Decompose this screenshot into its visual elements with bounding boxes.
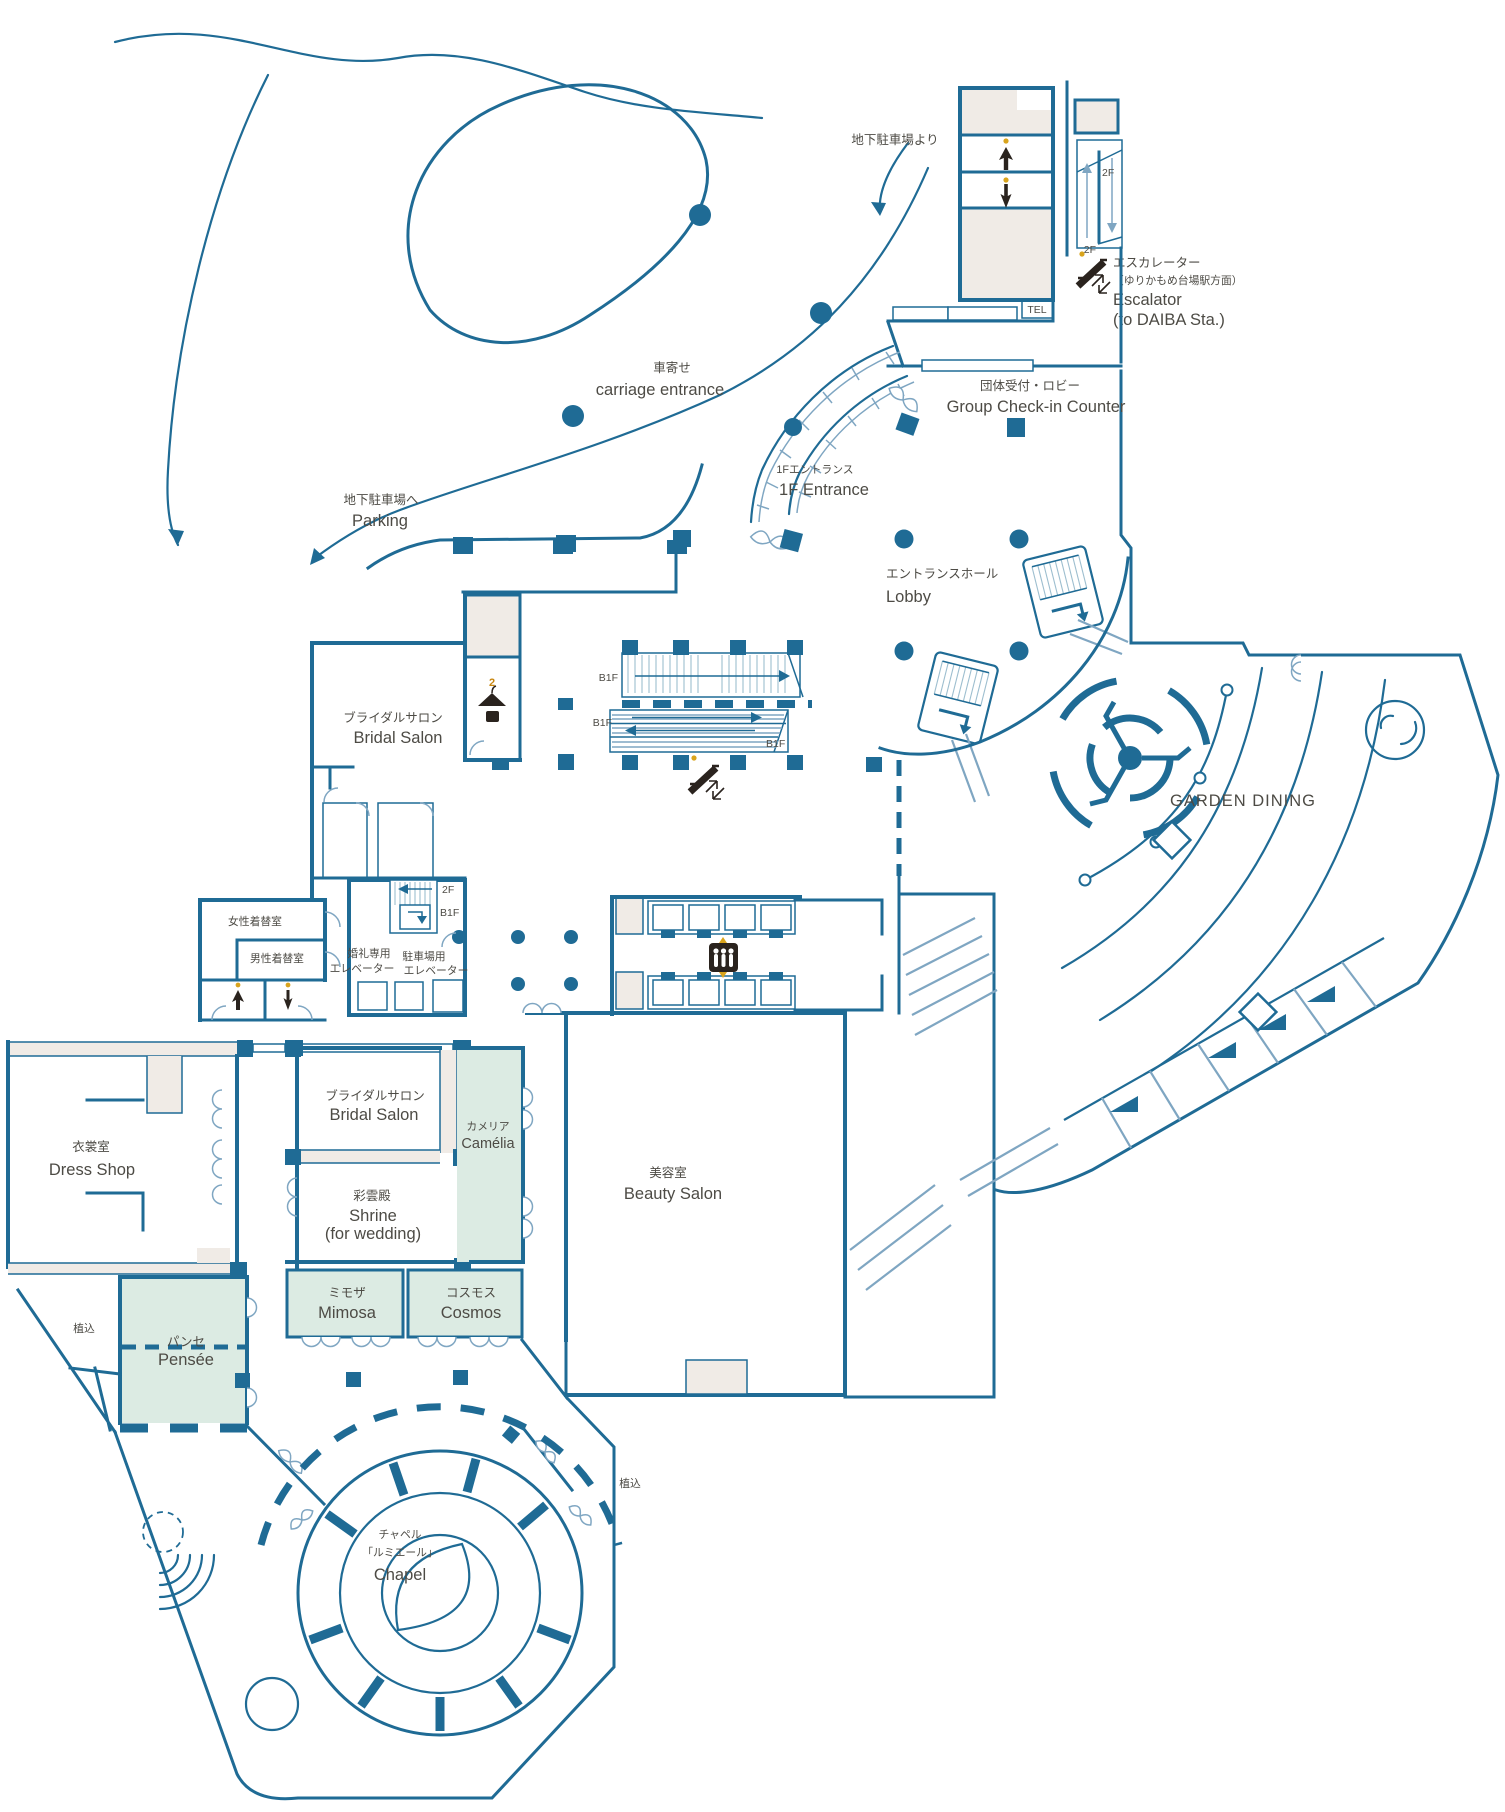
grand-stair-lower xyxy=(917,651,998,744)
service-room xyxy=(960,208,1053,300)
from-parking-arrow-icon xyxy=(871,202,886,216)
cloakroom: 2 xyxy=(465,595,520,760)
planting-left-label: 植込 xyxy=(73,1321,95,1335)
entrance-1f-jp: 1Fエントランス xyxy=(776,464,853,476)
carriage-entrance-area: 車寄せ carriage entrance xyxy=(408,85,832,427)
wedding-elev-label1: 婚礼専用 xyxy=(347,946,390,960)
camelia-jp: カメリア xyxy=(466,1120,509,1133)
chapel-wall-segments xyxy=(310,1459,570,1731)
camelia-en: Camélia xyxy=(461,1136,515,1152)
cloak-number: 2 xyxy=(489,677,495,689)
mimosa-en: Mimosa xyxy=(318,1304,377,1322)
column-round xyxy=(895,642,914,661)
camelia-room: カメリア Camélia xyxy=(457,1048,533,1262)
elevator-people-icon xyxy=(709,937,738,978)
group-checkin-en: Group Check-in Counter xyxy=(947,398,1126,416)
to-parking-arrow-icon xyxy=(310,548,325,565)
down-arrow-icon xyxy=(284,983,293,1010)
escalator-daiba: 2F 2F エスカレーター （ゆりかもめ台場駅方面） Escalator (to… xyxy=(1077,140,1243,643)
wedding-elev-label2: エレベーター xyxy=(330,962,395,975)
shrine-en1: Shrine xyxy=(349,1207,397,1225)
column-round xyxy=(1010,530,1029,549)
elevator-bank xyxy=(612,897,882,1014)
wedding-elevators: 2F B1F 婚礼専用 エレベーター 駐車場用 エレベーター xyxy=(330,880,469,1015)
column-round xyxy=(784,418,802,436)
carriage-label-jp: 車寄せ xyxy=(653,360,691,375)
stairs-2f-label: 2F xyxy=(442,884,454,896)
escalator-icon xyxy=(1078,251,1110,293)
escalator-label-en2: (to DAIBA Sta.) xyxy=(1113,311,1225,329)
column-round xyxy=(810,302,832,324)
changing-rooms: 女性着替室 男性着替室 xyxy=(200,900,340,1020)
banquet-mimosa: ミモザ Mimosa xyxy=(287,1270,403,1347)
garden-dining: GARDEN DINING xyxy=(845,643,1498,1397)
entrance-1f-en: 1F Entrance xyxy=(779,481,869,499)
floor-map: 車寄せ carriage entrance 地下駐車場より TEL xyxy=(0,0,1505,1812)
escalator-2f-top: 2F xyxy=(1102,167,1114,179)
from-parking-label: 地下駐車場より xyxy=(851,132,938,147)
shrine-jp: 彩雲殿 xyxy=(353,1189,391,1203)
bridal-center-en: Bridal Salon xyxy=(330,1106,419,1124)
bridal-west-jp: ブライダルサロン xyxy=(343,710,443,725)
pensee-jp: パンセ xyxy=(167,1335,205,1349)
grand-stair-upper xyxy=(1022,545,1103,638)
mimosa-jp: ミモザ xyxy=(328,1286,366,1300)
service-room-notch xyxy=(1017,88,1053,110)
dress-shop-en: Dress Shop xyxy=(49,1161,135,1179)
beauty-salon-en: Beauty Salon xyxy=(624,1185,722,1203)
cosmos-jp: コスモス xyxy=(446,1286,496,1300)
column-round xyxy=(562,405,584,427)
escalator-label-en: Escalator xyxy=(1113,291,1182,309)
column xyxy=(453,540,473,554)
escalator-2f-bottom: 2F xyxy=(1084,244,1096,256)
women-changing-label: 女性着替室 xyxy=(228,914,282,928)
up-arrow-icon xyxy=(232,983,244,1010)
lobby-label-jp: エントランスホール xyxy=(886,567,998,581)
group-checkin-counter: 団体受付・ロビー Group Check-in Counter xyxy=(888,307,1126,437)
column xyxy=(667,540,687,554)
escalator-b1f-label2: B1F xyxy=(766,738,785,750)
fountain-feature xyxy=(1053,681,1207,835)
planting-right-label: 植込 xyxy=(619,1476,641,1490)
chapel-jp1: チャペル xyxy=(378,1528,421,1541)
round-planter xyxy=(1366,701,1424,759)
parking-elev-label1: 駐車場用 xyxy=(402,949,445,963)
entrance-door-icon xyxy=(887,383,922,415)
service-room xyxy=(1075,100,1118,133)
bridal-center-jp: ブライダルサロン xyxy=(325,1088,425,1103)
dress-shop-jp: 衣裳室 xyxy=(72,1139,110,1154)
cosmos-en: Cosmos xyxy=(441,1304,502,1322)
entrance-1f: 1Fエントランス 1F Entrance xyxy=(673,346,922,552)
bridal-shrine-block: ブライダルサロン Bridal Salon 彩雲殿 Shrine (for we… xyxy=(285,1040,471,1276)
parking-label-jp: 地下駐車場へ xyxy=(343,492,418,507)
chapel-jp2: 「ルミエール」 xyxy=(362,1546,438,1559)
tel-label: TEL xyxy=(1027,304,1046,316)
column-round xyxy=(895,530,914,549)
chapel-en: Chapel xyxy=(374,1566,426,1584)
bridal-west-en: Bridal Salon xyxy=(354,729,443,747)
parking-label-en: Parking xyxy=(352,512,408,530)
group-checkin-jp: 団体受付・ロビー xyxy=(980,379,1080,393)
planting-left: 植込 xyxy=(18,1290,120,1432)
stair-b1f-label: B1F xyxy=(599,672,618,684)
column xyxy=(1007,418,1025,437)
escalator-note: （ゆりかもめ台場駅方面） xyxy=(1113,273,1243,287)
stairs-b1f-label: B1F xyxy=(440,907,459,919)
column-round xyxy=(1010,642,1029,661)
escalator-label-jp: エスカレーター xyxy=(1113,256,1201,270)
dress-shop: 衣裳室 Dress Shop xyxy=(8,1042,247,1276)
banquet-pensee: パンセ Pensée xyxy=(120,1277,257,1428)
column xyxy=(895,412,919,435)
escalator-b1f-label: B1F xyxy=(593,717,612,729)
escalator-icon xyxy=(690,755,724,799)
corridor-band xyxy=(8,930,578,1057)
lobby-label-en: Lobby xyxy=(886,588,932,606)
floor-map-svg: 車寄せ carriage entrance 地下駐車場より TEL xyxy=(0,0,1505,1812)
column xyxy=(553,540,573,554)
banquet-cosmos: コスモス Cosmos xyxy=(408,1270,522,1347)
carriage-label-en: carriage entrance xyxy=(596,381,724,399)
men-changing-label: 男性着替室 xyxy=(250,951,304,965)
beauty-salon-jp: 美容室 xyxy=(649,1165,687,1180)
beauty-salon: 美容室 Beauty Salon xyxy=(523,1004,845,1396)
parking-elev-label2: エレベーター xyxy=(404,964,469,977)
column-round xyxy=(689,204,711,226)
pensee-en: Pensée xyxy=(158,1351,214,1369)
garden-dining-label: GARDEN DINING xyxy=(1170,792,1316,810)
shrine-en2: (for wedding) xyxy=(325,1225,421,1243)
column-round xyxy=(452,930,466,944)
